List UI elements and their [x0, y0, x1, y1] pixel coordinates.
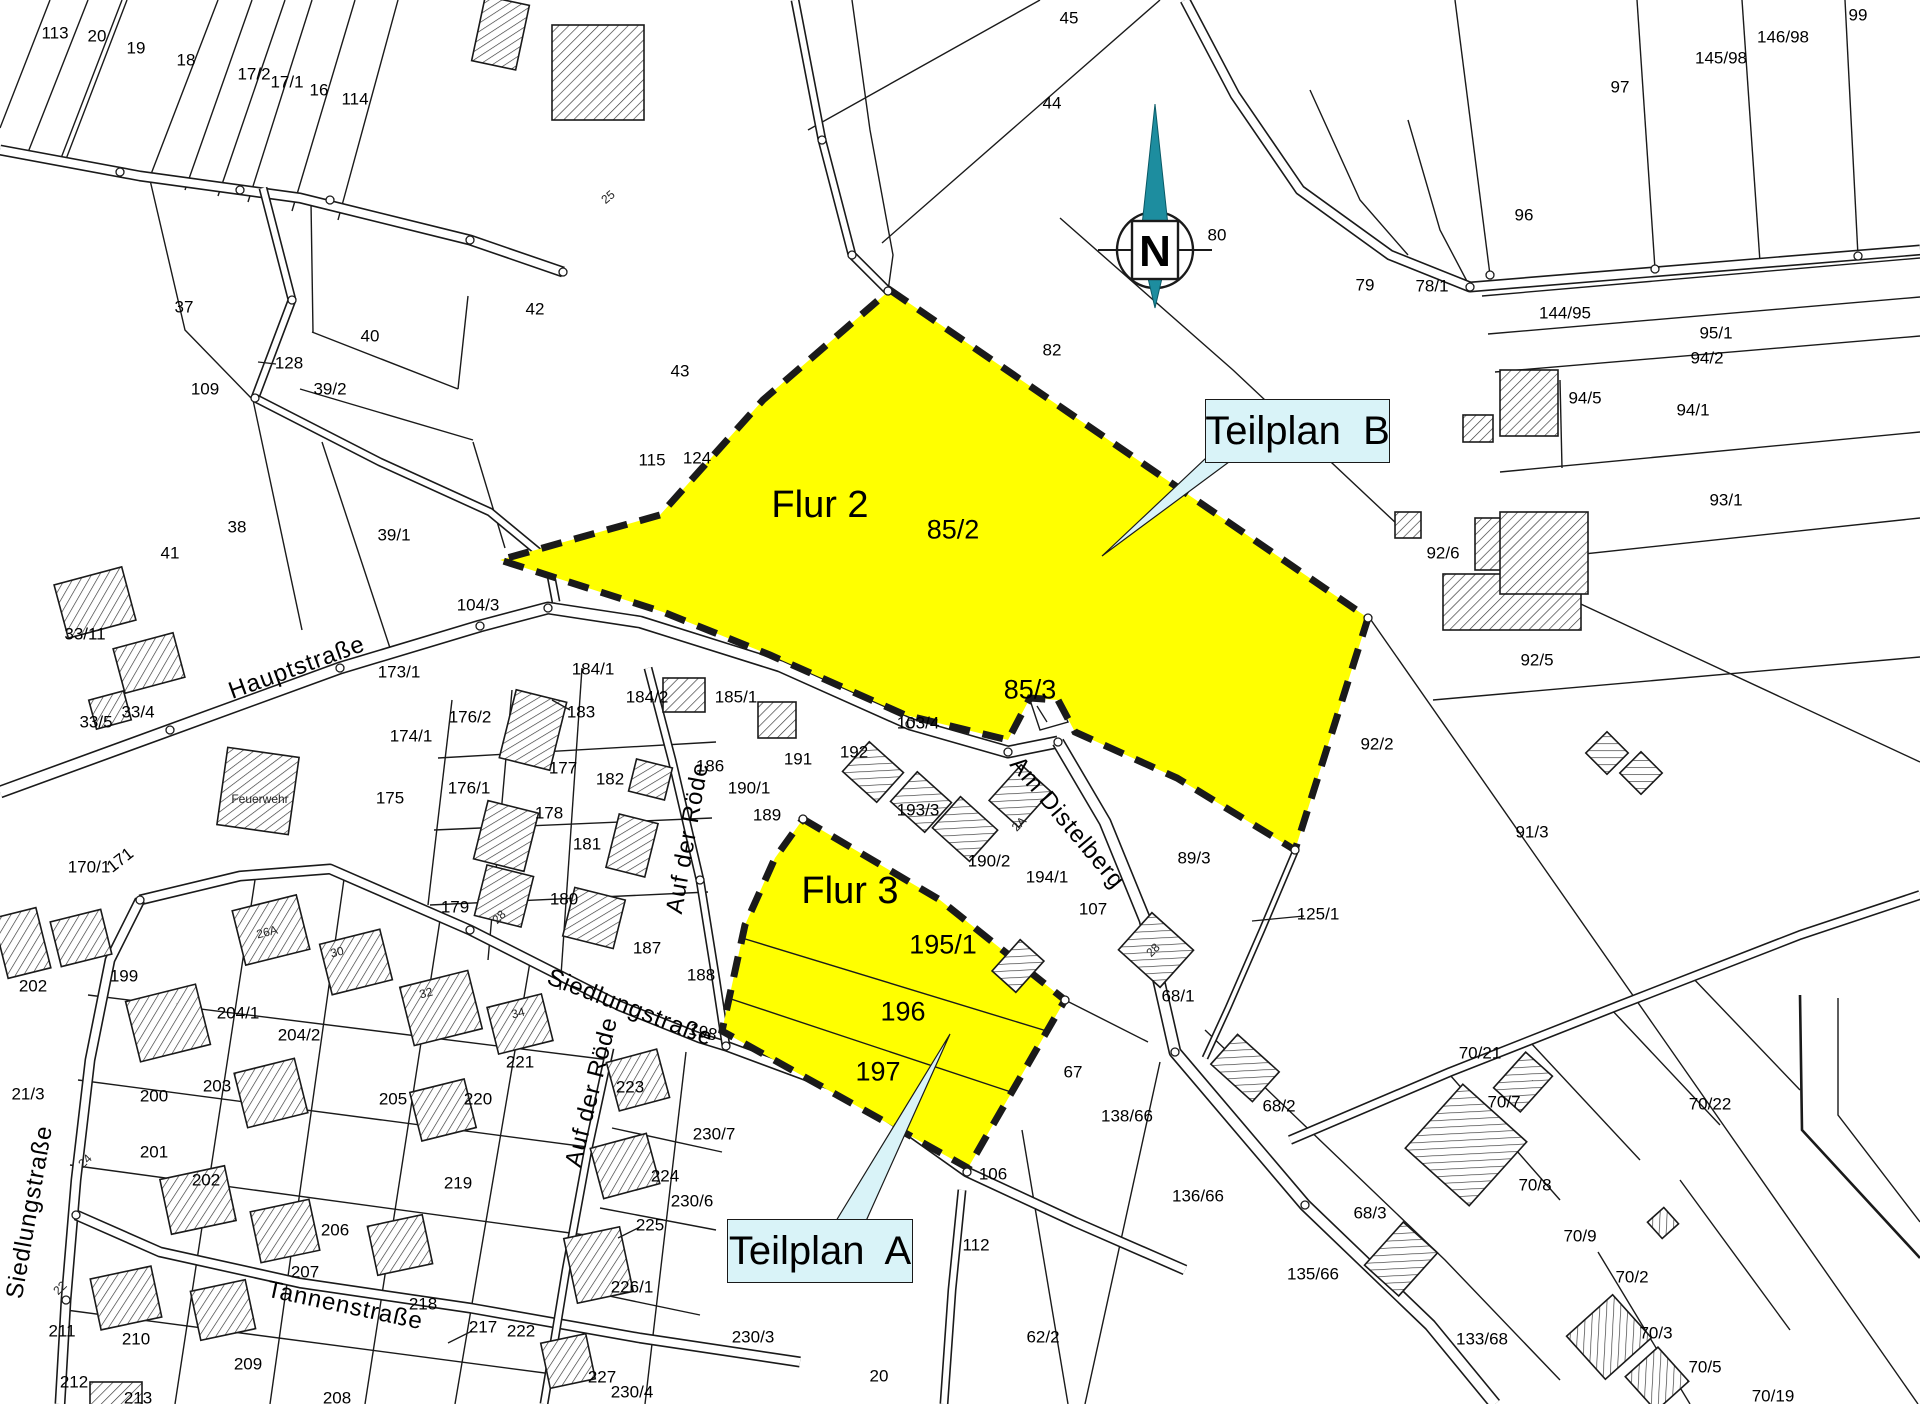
parcel-number-label: 182 — [596, 771, 624, 788]
parcel-number-label: 188 — [687, 967, 715, 984]
street-name-label: Siedlungstraße — [3, 1124, 57, 1301]
parcel-number-label: 94/1 — [1676, 402, 1709, 419]
parcel-number-label: 204/2 — [278, 1027, 321, 1044]
parcel-number-label: 175 — [376, 790, 404, 807]
parcel-number-label: 190/2 — [968, 853, 1011, 870]
parcel-number-label: 22 — [51, 1279, 69, 1297]
parcel-number-label: 20 — [870, 1368, 889, 1385]
parcel-number-label: 174/1 — [390, 728, 433, 745]
parcel-number-label: 176/1 — [448, 780, 491, 797]
parcel-number-label: 133/68 — [1456, 1331, 1508, 1348]
parcel-number-label: 97 — [1611, 79, 1630, 96]
parcel-number-label: 2A — [1010, 815, 1029, 834]
parcel-number-label: 70/21 — [1459, 1045, 1502, 1062]
parcel-number-label: 189 — [753, 807, 781, 824]
parcel-number-label: 181 — [573, 836, 601, 853]
parcel-number-label: 179 — [441, 899, 469, 916]
parcel-number-label: 230/7 — [693, 1126, 736, 1143]
parcel-number-label: 70/5 — [1688, 1359, 1721, 1376]
parcel-number-label: 226/1 — [611, 1279, 654, 1296]
parcel-number-label: 219 — [444, 1175, 472, 1192]
parcel-number-label: 208 — [323, 1390, 351, 1404]
parcel-number-label: 220 — [464, 1091, 492, 1108]
parcel-number-label: 17/1 — [270, 74, 303, 91]
parcel-number-label: 67 — [1064, 1064, 1083, 1081]
parcel-number-label: 34 — [510, 1006, 526, 1021]
parcel-number-label: 223 — [616, 1079, 644, 1096]
parcel-number-label: 70/8 — [1518, 1177, 1551, 1194]
parcel-number-label: 44 — [1043, 95, 1062, 112]
parcel-number-label: 201 — [140, 1144, 168, 1161]
parcel-number-label: 180 — [550, 891, 578, 908]
parcel-number-label: 106 — [979, 1166, 1007, 1183]
parcel-number-label: 217 — [469, 1319, 497, 1336]
callout-teilplan-b-label: Teilplan B — [1205, 409, 1390, 454]
parcel-number-label: 95/1 — [1699, 325, 1732, 342]
parcel-number-label: 193/3 — [897, 802, 940, 819]
parcel-number-label: 184/1 — [572, 661, 615, 678]
callout-teilplan-a: Teilplan A — [727, 1219, 913, 1283]
parcel-number-label: 202 — [19, 978, 47, 995]
parcel-number-label: 207 — [291, 1264, 319, 1281]
parcel-number-label: 80 — [1208, 227, 1227, 244]
parcel-number-label: 93/1 — [1709, 492, 1742, 509]
parcel-number-label: 176/2 — [449, 709, 492, 726]
parcel-number-label: 230/4 — [611, 1384, 654, 1401]
parcel-number-label: 183 — [567, 704, 595, 721]
parcel-number-label: 177 — [549, 760, 577, 777]
parcel-number-label: 42 — [526, 301, 545, 318]
parcel-number-label: 91/3 — [1515, 824, 1548, 841]
parcel-number-label: 191 — [784, 751, 812, 768]
parcel-number-label: 103/4 — [897, 715, 940, 732]
parcel-number-label: 92/5 — [1520, 652, 1553, 669]
parcel-number-label: 21/3 — [11, 1086, 44, 1103]
parcel-number-label: 212 — [60, 1374, 88, 1391]
parcel-number-label: 70/19 — [1752, 1388, 1795, 1404]
parcel-number-label: 202 — [192, 1172, 220, 1189]
parcel-number-label: 28 — [1144, 941, 1162, 959]
parcel-number-label: 68/2 — [1262, 1098, 1295, 1115]
parcel-number-label: 104/3 — [457, 597, 500, 614]
parcel-number-label: 200 — [140, 1088, 168, 1105]
map-labels-layer: 11320191817/217/1161144544146/9899145/98… — [0, 0, 1920, 1404]
parcel-number-label: 79 — [1356, 277, 1375, 294]
street-name-label: Auf der Röde — [663, 760, 713, 915]
parcel-number-label: 33/4 — [121, 704, 154, 721]
parcel-number-label: 94/5 — [1568, 390, 1601, 407]
parcel-number-label: 195/1 — [909, 932, 977, 959]
parcel-number-label: 213 — [124, 1390, 152, 1404]
parcel-number-label: 68/1 — [1161, 988, 1194, 1005]
parcel-number-label: 138/66 — [1101, 1108, 1153, 1125]
parcel-number-label: 16 — [310, 82, 329, 99]
parcel-number-label: 37 — [175, 299, 194, 316]
parcel-number-label: 206 — [321, 1222, 349, 1239]
parcel-number-label: 70/2 — [1615, 1269, 1648, 1286]
parcel-number-label: 192 — [840, 744, 868, 761]
parcel-number-label: 20 — [88, 28, 107, 45]
parcel-number-label: 30 — [329, 945, 345, 960]
parcel-number-label: 107 — [1079, 901, 1107, 918]
parcel-number-label: 114 — [341, 91, 368, 108]
parcel-number-label: 136/66 — [1172, 1188, 1224, 1205]
parcel-number-label: 225 — [636, 1217, 664, 1234]
street-name-label: Hauptstraße — [226, 632, 369, 703]
parcel-number-label: 39/2 — [313, 381, 346, 398]
parcel-number-label: 230/6 — [671, 1193, 714, 1210]
parcel-number-label: 209 — [234, 1356, 262, 1373]
parcel-number-label: 92/2 — [1360, 736, 1393, 753]
parcel-number-label: 224 — [651, 1168, 679, 1185]
parcel-number-label: 222 — [507, 1323, 535, 1340]
parcel-number-label: 125/1 — [1297, 906, 1340, 923]
parcel-number-label: 17/2 — [237, 66, 270, 83]
parcel-number-label: 78/1 — [1415, 278, 1448, 295]
callout-teilplan-b: Teilplan B — [1205, 399, 1390, 463]
parcel-number-label: 230/3 — [732, 1329, 775, 1346]
parcel-number-label: 19 — [127, 40, 146, 57]
parcel-number-label: 24 — [76, 1152, 94, 1170]
parcel-number-label: 26A — [255, 924, 279, 941]
street-name-label: Auf der Röde — [562, 1015, 622, 1170]
street-name-label: Tannenstraße — [265, 1278, 425, 1334]
parcel-number-label: 92/6 — [1426, 545, 1459, 562]
parcel-number-label: 210 — [122, 1331, 150, 1348]
parcel-number-label: 199 — [110, 968, 138, 985]
parcel-number-label: 221 — [506, 1054, 534, 1071]
parcel-number-label: 203 — [203, 1078, 231, 1095]
parcel-number-label: 197 — [855, 1059, 900, 1086]
parcel-number-label: 184/2 — [626, 689, 669, 706]
parcel-number-label: 28 — [490, 908, 508, 926]
parcel-number-label: Feuerwehr — [231, 793, 288, 805]
parcel-number-label: 43 — [671, 363, 690, 380]
parcel-number-label: 85/3 — [1004, 677, 1057, 704]
parcel-number-label: 173/1 — [378, 664, 421, 681]
parcel-number-label: 33/11 — [64, 626, 105, 643]
parcel-number-label: 70/3 — [1639, 1325, 1672, 1342]
parcel-number-label: 185/1 — [715, 689, 758, 706]
parcel-number-label: 45 — [1060, 10, 1079, 27]
parcel-number-label: 144/95 — [1539, 305, 1591, 322]
parcel-number-label: 115 — [638, 452, 665, 469]
callout-teilplan-a-label: Teilplan A — [729, 1229, 911, 1274]
parcel-number-label: 194/1 — [1026, 869, 1069, 886]
parcel-number-label: 196 — [880, 999, 925, 1026]
parcel-number-label: 38 — [228, 519, 247, 536]
parcel-number-label: 187 — [633, 940, 661, 957]
parcel-number-label: 85/2 — [927, 517, 980, 544]
parcel-number-label: 68/3 — [1353, 1205, 1386, 1222]
parcel-number-label: 211 — [48, 1323, 75, 1340]
parcel-number-label: 70/7 — [1487, 1094, 1520, 1111]
parcel-number-label: 124 — [683, 450, 711, 467]
parcel-number-label: 145/98 — [1695, 50, 1747, 67]
parcel-number-label: 41 — [161, 545, 180, 562]
parcel-number-label: 204/1 — [217, 1005, 260, 1022]
parcel-number-label: 178 — [535, 805, 563, 822]
parcel-number-label: 18 — [177, 52, 196, 69]
parcel-number-label: 109 — [191, 381, 219, 398]
parcel-number-label: 70/22 — [1689, 1096, 1732, 1113]
parcel-number-label: 32 — [418, 986, 434, 1001]
parcel-number-label: 190/1 — [728, 780, 771, 797]
cadastral-map-page: N 11320191817/217/1161144544146/9899145/… — [0, 0, 1920, 1404]
parcel-number-label: 135/66 — [1287, 1266, 1339, 1283]
parcel-number-label: 146/98 — [1757, 29, 1809, 46]
parcel-number-label: 96 — [1515, 207, 1534, 224]
parcel-number-label: 113 — [41, 25, 68, 42]
flur-zone-label: Flur 2 — [771, 486, 868, 524]
parcel-number-label: 70/9 — [1563, 1228, 1596, 1245]
parcel-number-label: 112 — [962, 1237, 989, 1254]
parcel-number-label: 40 — [361, 328, 380, 345]
parcel-number-label: 33/5 — [79, 714, 112, 731]
parcel-number-label: 128 — [275, 355, 303, 372]
parcel-number-label: 94/2 — [1690, 350, 1723, 367]
parcel-number-label: 25 — [599, 188, 617, 206]
parcel-number-label: 99 — [1849, 7, 1868, 24]
parcel-number-label: 82 — [1043, 342, 1062, 359]
flur-zone-label: Flur 3 — [801, 872, 898, 910]
parcel-number-label: 39/1 — [377, 527, 410, 544]
parcel-number-label: 89/3 — [1177, 850, 1210, 867]
parcel-number-label: 205 — [379, 1091, 407, 1108]
parcel-number-label: 62/2 — [1026, 1329, 1059, 1346]
